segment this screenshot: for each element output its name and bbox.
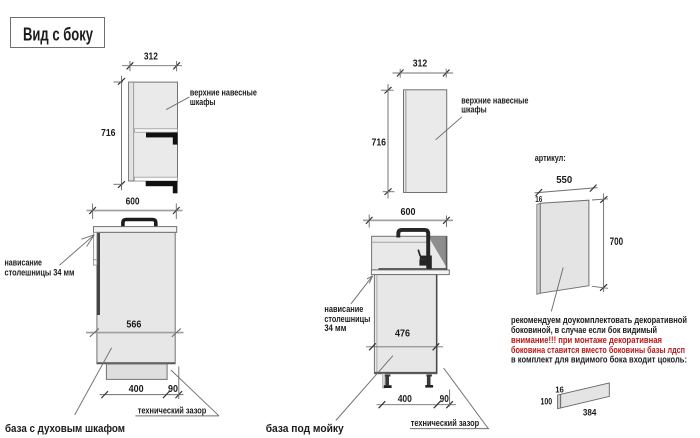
svg-text:технический зазор: технический зазор bbox=[138, 406, 207, 416]
svg-text:90: 90 bbox=[440, 394, 450, 405]
svg-text:700: 700 bbox=[610, 236, 624, 248]
svg-text:боковина ставится вместо боков: боковина ставится вместо боковины базы л… bbox=[511, 345, 685, 355]
svg-text:шкафы: шкафы bbox=[190, 97, 216, 108]
svg-text:384: 384 bbox=[583, 407, 597, 418]
svg-text:100: 100 bbox=[541, 397, 553, 407]
svg-text:90: 90 bbox=[168, 384, 178, 395]
svg-text:400: 400 bbox=[398, 394, 413, 405]
svg-text:столешницы 34 мм: столешницы 34 мм bbox=[5, 267, 75, 277]
svg-text:Вид с боку: Вид с боку bbox=[23, 25, 93, 45]
svg-text:в комплект для видимого бока в: в комплект для видимого бока входит цоко… bbox=[511, 355, 687, 365]
svg-text:нависание: нависание bbox=[5, 258, 43, 268]
svg-text:база с духовым шкафом: база с духовым шкафом bbox=[5, 423, 125, 435]
svg-text:600: 600 bbox=[126, 196, 140, 207]
svg-text:476: 476 bbox=[395, 329, 410, 340]
svg-text:16: 16 bbox=[535, 194, 542, 204]
svg-text:312: 312 bbox=[413, 59, 428, 70]
svg-text:боковиной, в случае если бок в: боковиной, в случае если бок видимый bbox=[511, 325, 657, 335]
svg-text:400: 400 bbox=[129, 384, 144, 395]
svg-text:нависание: нависание bbox=[324, 304, 363, 314]
svg-text:артикул:: артикул: bbox=[535, 153, 566, 163]
svg-text:технический зазор: технический зазор bbox=[411, 418, 480, 428]
svg-text:566: 566 bbox=[126, 319, 141, 330]
svg-text:550: 550 bbox=[556, 175, 572, 186]
svg-text:шкафы: шкафы bbox=[461, 105, 486, 116]
svg-text:внимание!!! при монтаже декора: внимание!!! при монтаже декоративная bbox=[511, 335, 662, 345]
svg-text:база под мойку: база под мойку bbox=[266, 423, 345, 435]
svg-text:34 мм: 34 мм bbox=[324, 323, 346, 333]
svg-text:716: 716 bbox=[101, 128, 116, 139]
svg-text:рекомендуем доукомплектовать д: рекомендуем доукомплектовать декоративно… bbox=[511, 315, 687, 325]
svg-text:312: 312 bbox=[144, 52, 158, 63]
svg-text:716: 716 bbox=[372, 138, 387, 149]
svg-text:600: 600 bbox=[401, 207, 416, 218]
svg-text:16: 16 bbox=[555, 384, 564, 394]
